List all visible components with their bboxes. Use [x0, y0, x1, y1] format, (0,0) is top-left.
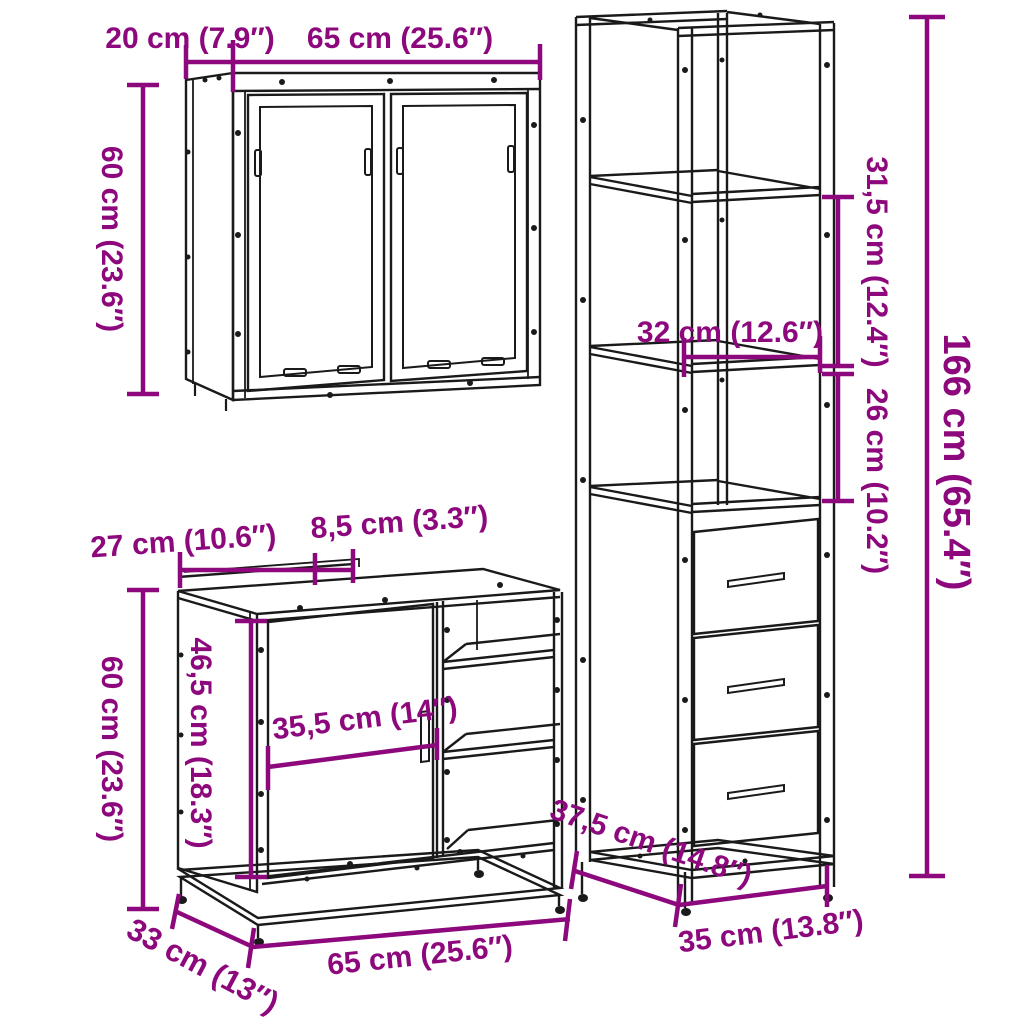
wall-cabinet-drawing — [186, 73, 541, 411]
wall-height-label: 60 cm (23.6″) — [95, 146, 128, 332]
sink-height-label: 60 cm (23.6″) — [95, 656, 128, 842]
tall-height-label: 166 cm (65.4″) — [935, 334, 977, 591]
wall-width-label: 65 cm (25.6″) — [307, 22, 493, 55]
sink-depth-label: 33 cm (13″) — [121, 911, 284, 1020]
screw-dots — [186, 76, 538, 399]
tall-cabinet-drawers — [694, 519, 818, 846]
tall-cabinet-drawing — [576, 11, 834, 916]
dimension-labels: 20 cm (7.9″) 65 cm (25.6″) 60 cm (23.6″)… — [89, 22, 977, 1020]
tall-lower-compartment-label: 26 cm (10.2″) — [860, 388, 893, 574]
dim-line-tall-upper — [822, 197, 854, 366]
sink-back-left-width-label: 27 cm (10.6″) — [89, 519, 277, 565]
tall-width-label: 35 cm (13.8″) — [676, 904, 865, 959]
sink-back-notch-width-label: 8,5 cm (3.3″) — [310, 500, 490, 545]
sink-door-width-label: 35,5 cm (14″) — [270, 691, 459, 746]
furniture-dimension-diagram: 20 cm (7.9″) 65 cm (25.6″) 60 cm (23.6″)… — [0, 0, 1024, 1024]
tall-upper-compartment-label: 31,5 cm (12.4″) — [860, 156, 893, 367]
dim-line-tall-lower — [822, 374, 854, 501]
screw-dots — [580, 13, 830, 864]
tall-shelf-width-label: 32 cm (12.6″) — [637, 316, 823, 349]
diagram-canvas: 20 cm (7.9″) 65 cm (25.6″) 60 cm (23.6″)… — [0, 0, 1024, 1024]
dimension-lines — [127, 17, 945, 968]
dim-line-sink-height — [127, 590, 159, 909]
dim-line-wall-height — [127, 85, 159, 394]
sink-frame-height-label: 46,5 cm (18.3″) — [184, 637, 217, 848]
wall-depth-label: 20 cm (7.9″) — [105, 22, 274, 55]
dim-line-sink-frame-height — [235, 621, 267, 877]
sink-cabinet-shelves — [443, 634, 560, 849]
